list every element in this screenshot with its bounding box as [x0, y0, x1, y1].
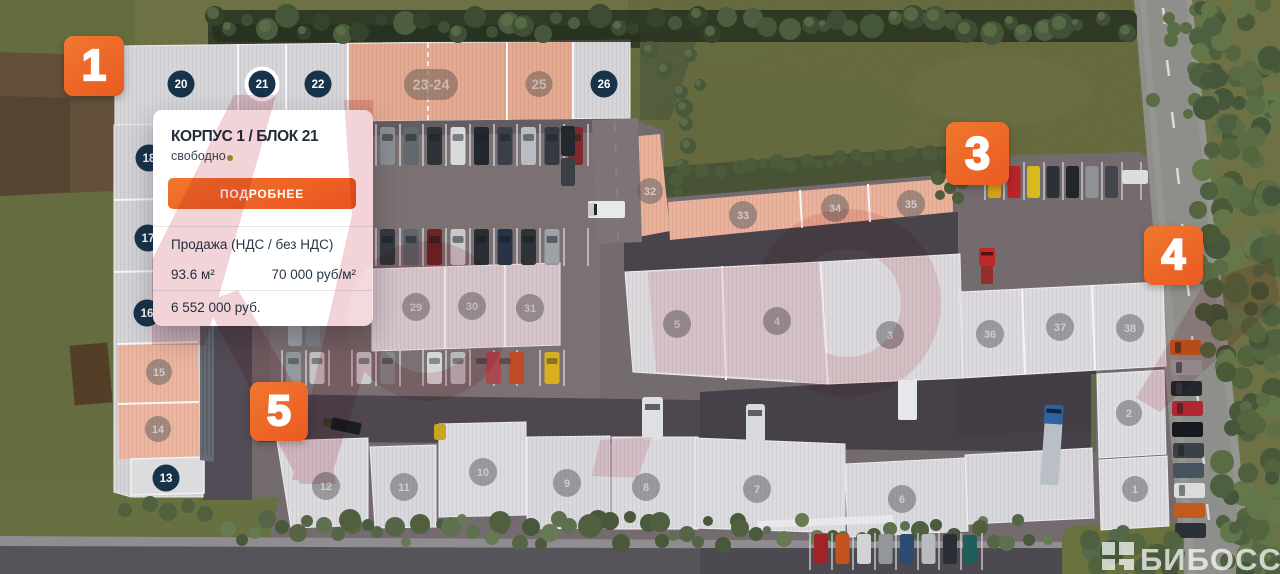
svg-text:36: 36	[984, 329, 996, 341]
svg-text:34: 34	[829, 203, 842, 215]
svg-text:8: 8	[643, 482, 649, 494]
svg-text:15: 15	[153, 367, 165, 379]
svg-text:4: 4	[774, 316, 781, 328]
svg-text:9: 9	[564, 478, 570, 490]
svg-text:35: 35	[905, 199, 917, 211]
svg-text:2: 2	[1126, 408, 1132, 420]
svg-text:13: 13	[160, 473, 173, 485]
svg-text:25: 25	[531, 77, 547, 92]
svg-text:37: 37	[1054, 322, 1066, 334]
svg-text:31: 31	[524, 303, 536, 315]
svg-text:7: 7	[754, 484, 760, 496]
svg-text:12: 12	[320, 481, 332, 493]
svg-text:6: 6	[899, 494, 905, 506]
svg-text:22: 22	[312, 79, 325, 91]
svg-text:26: 26	[598, 79, 611, 91]
svg-text:30: 30	[466, 301, 478, 313]
svg-text:3: 3	[887, 330, 893, 342]
svg-text:10: 10	[477, 467, 489, 479]
svg-text:38: 38	[1124, 323, 1136, 335]
svg-text:33: 33	[737, 210, 749, 222]
svg-text:21: 21	[256, 79, 269, 91]
svg-text:20: 20	[175, 79, 188, 91]
svg-text:5: 5	[674, 319, 680, 331]
svg-text:1: 1	[1132, 484, 1138, 496]
svg-text:БИБОСС: БИБОСС	[1140, 542, 1280, 574]
svg-text:23-24: 23-24	[412, 78, 449, 94]
svg-text:29: 29	[410, 302, 422, 314]
svg-text:16: 16	[141, 308, 154, 320]
svg-text:11: 11	[398, 482, 410, 494]
svg-text:14: 14	[152, 424, 165, 436]
svg-text:32: 32	[644, 186, 656, 198]
